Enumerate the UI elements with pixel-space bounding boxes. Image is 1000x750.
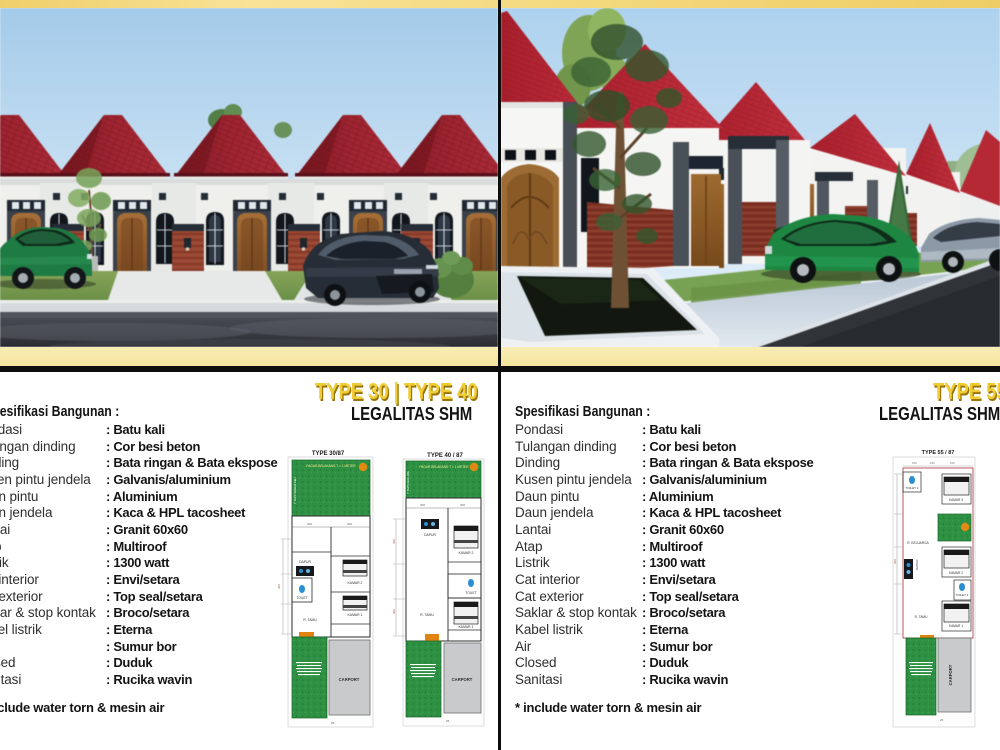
- svg-text:300: 300: [420, 503, 425, 507]
- svg-text:300: 300: [277, 584, 281, 589]
- svg-text:150: 150: [930, 461, 935, 465]
- svg-text:T TAPS KELILING: T TAPS KELILING: [406, 471, 410, 494]
- svg-text:300: 300: [347, 522, 352, 526]
- svg-text:CARPORT: CARPORT: [339, 677, 360, 682]
- svg-text:KAMAR 1: KAMAR 1: [348, 613, 363, 617]
- svg-text:PAGAR BELAKANG T = 1 METER: PAGAR BELAKANG T = 1 METER: [419, 465, 469, 469]
- svg-text:25: 25: [331, 721, 335, 725]
- svg-text:TOILET 1: TOILET 1: [956, 593, 969, 597]
- svg-text:R. TAMU: R. TAMU: [420, 613, 434, 617]
- svg-text:300: 300: [307, 522, 312, 526]
- svg-text:PAGAR BELAKANG T = 1 METER: PAGAR BELAKANG T = 1 METER: [306, 464, 356, 468]
- svg-text:CARPORT: CARPORT: [948, 664, 953, 685]
- svg-text:KAMAR 1: KAMAR 1: [949, 624, 963, 628]
- svg-text:TOILET: TOILET: [296, 596, 307, 600]
- svg-text:CARPORT: CARPORT: [452, 677, 473, 682]
- svg-text:KAMAR 2: KAMAR 2: [949, 571, 963, 575]
- svg-text:300: 300: [893, 559, 897, 564]
- svg-text:R. TAMU: R. TAMU: [303, 618, 317, 622]
- svg-text:300: 300: [392, 539, 396, 544]
- svg-text:25: 25: [446, 719, 450, 723]
- svg-text:DAPUR: DAPUR: [424, 533, 436, 537]
- svg-text:TOILET 2: TOILET 2: [906, 486, 919, 490]
- svg-text:300: 300: [392, 609, 396, 614]
- svg-text:R. KELUARGA: R. KELUARGA: [907, 541, 929, 545]
- svg-text:KAMAR 1: KAMAR 1: [459, 625, 474, 629]
- svg-text:TYPE 30/87: TYPE 30/87: [312, 451, 345, 457]
- svg-text:KAMAR 2: KAMAR 2: [459, 551, 474, 555]
- svg-text:KAMAR 2: KAMAR 2: [348, 581, 363, 585]
- svg-text:DAPUR: DAPUR: [915, 559, 919, 570]
- svg-text:150: 150: [912, 461, 917, 465]
- svg-text:150: 150: [950, 461, 955, 465]
- svg-text:TOILET: TOILET: [465, 591, 476, 595]
- svg-text:R. TAMU: R. TAMU: [915, 615, 929, 619]
- svg-text:DAPUR: DAPUR: [299, 560, 311, 564]
- svg-text:300: 300: [460, 503, 465, 507]
- svg-text:KAMAR 3: KAMAR 3: [949, 498, 963, 502]
- svg-text:TYPE 40 / 87: TYPE 40 / 87: [427, 453, 463, 459]
- svg-text:T TAPS SEMUA KELI: T TAPS SEMUA KELI: [293, 477, 297, 504]
- svg-text:25: 25: [940, 718, 944, 722]
